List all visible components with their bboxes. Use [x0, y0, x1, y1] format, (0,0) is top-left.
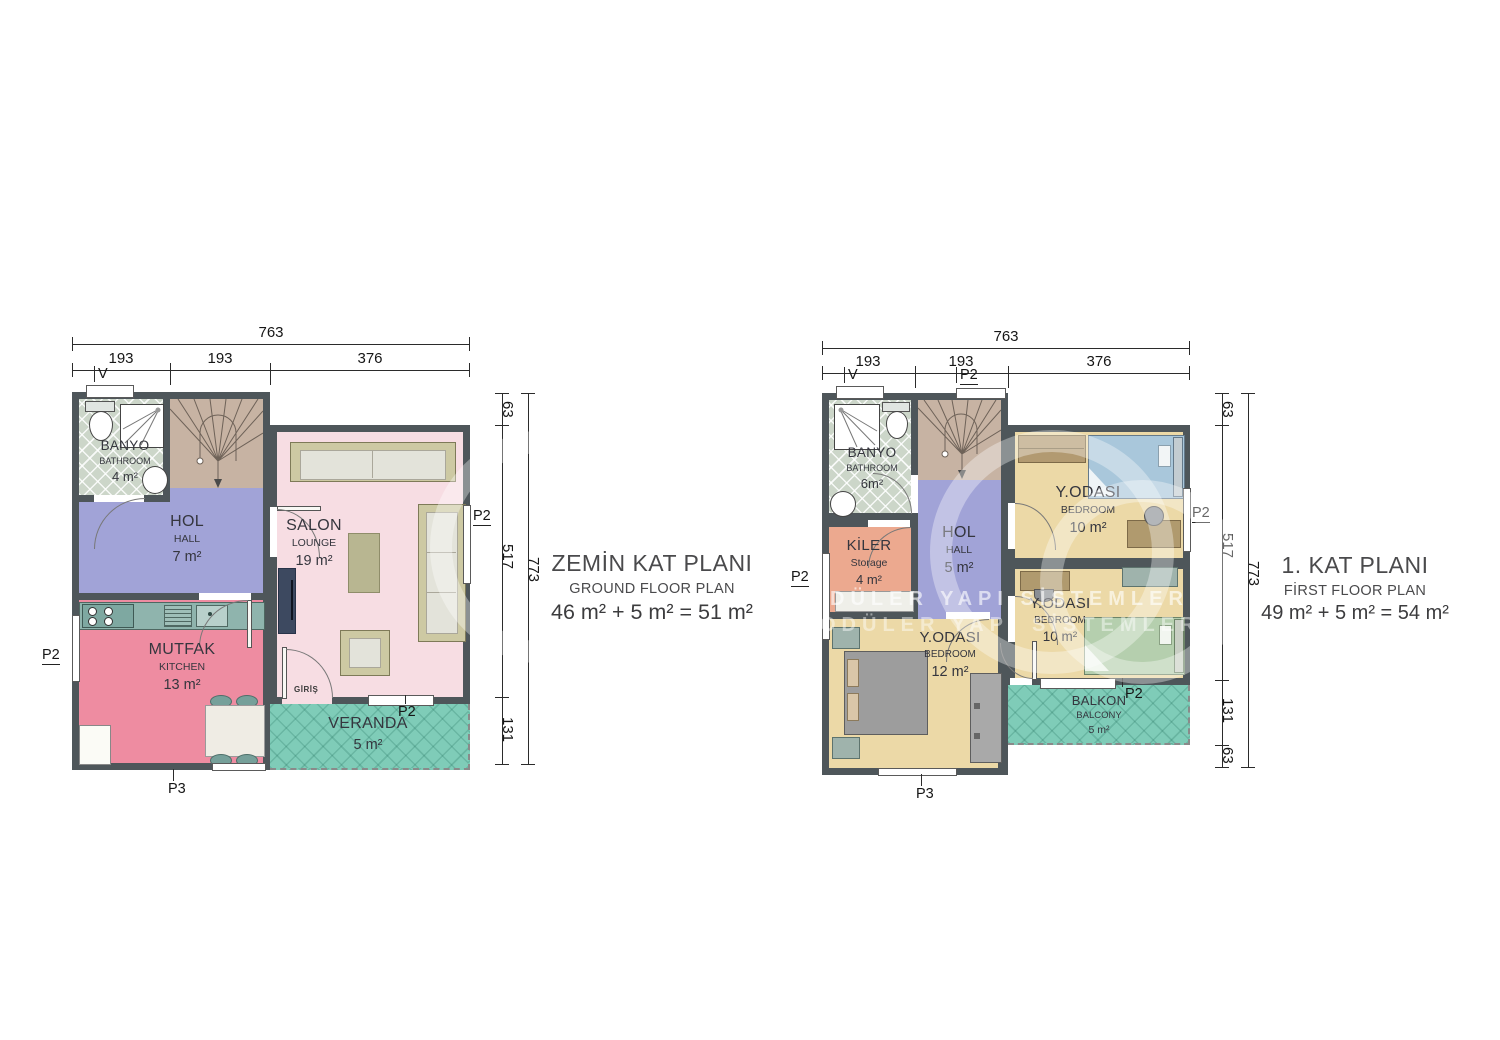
dim-tick — [173, 769, 174, 781]
dim-label: 63 — [1219, 401, 1236, 418]
room-name: MUTFAK — [149, 640, 216, 660]
door-opening — [868, 520, 910, 527]
door-opening-entrance — [282, 697, 332, 704]
vent-tag: V — [848, 367, 858, 384]
dim-label: 376 — [357, 350, 382, 367]
dim-label: 131 — [499, 717, 516, 742]
dim-tick — [170, 363, 171, 385]
dim-label: 131 — [1219, 698, 1236, 723]
watermark-logo-ring — [1040, 480, 1244, 684]
dim-tick — [915, 366, 916, 388]
room-area: 5 m² — [1072, 724, 1127, 737]
ground-floor-title-block: ZEMİN KAT PLANI GROUND FLOOR PLAN 46 m² … — [525, 550, 779, 625]
door-opening — [270, 507, 277, 557]
dim-tick — [822, 366, 823, 380]
dim-tick — [1008, 366, 1009, 388]
dim-tick — [1189, 341, 1190, 355]
dim-label: 193 — [207, 350, 232, 367]
room-name: VERANDA — [328, 714, 407, 734]
room-label-kiler: KİLER Storage 4 m² — [847, 537, 892, 588]
room-label-banyo: BANYO BATHROOM 6m² — [846, 445, 897, 492]
dim-tick — [495, 697, 509, 698]
wardrobe-handle — [974, 733, 980, 739]
plan-title: 1. KAT PLANI — [1248, 552, 1462, 579]
dim-label: 193 — [108, 350, 133, 367]
dim-line — [822, 348, 1190, 349]
room-name-en: BATHROOM — [846, 463, 897, 474]
dim-label-total-width: 763 — [993, 328, 1018, 345]
dim-tick — [72, 337, 73, 351]
wardrobe — [970, 673, 1002, 763]
stove-burner — [104, 607, 113, 616]
dim-tick — [1215, 393, 1229, 394]
vent-window — [86, 385, 134, 398]
room-label-veranda: VERANDA 5 m² — [328, 714, 407, 754]
room-name-en: BEDROOM — [919, 649, 980, 662]
dim-tick — [495, 764, 509, 765]
door-tag-p3: P3 — [916, 786, 934, 803]
dining-table — [205, 705, 265, 757]
dim-tick — [1241, 767, 1255, 768]
room-area: 4 m² — [847, 572, 892, 588]
vent-tag: V — [98, 366, 108, 383]
dim-tick — [1215, 680, 1229, 681]
plan-subtitle: FİRST FLOOR PLAN — [1248, 583, 1462, 599]
dim-tick — [72, 363, 73, 377]
dim-tick — [469, 337, 470, 351]
dim-tick — [521, 393, 535, 394]
dim-line — [72, 370, 470, 371]
dim-tick — [495, 393, 509, 394]
dim-label: 63 — [1219, 747, 1236, 764]
room-area: 6m² — [846, 476, 897, 492]
room-area: 19 m² — [286, 552, 342, 570]
watermark-text: DÜLER YAPI SİSTEMLERİ — [830, 588, 1201, 611]
window — [956, 388, 1006, 399]
dim-tick — [94, 366, 95, 382]
room-name: BANYO — [99, 438, 150, 455]
room-name-en: HALL — [170, 533, 204, 546]
dim-tick — [1189, 366, 1190, 380]
door-opening — [1010, 678, 1032, 685]
floor-plan-sheet: 763 193 193 376 63 517 131 773 V P2 P2 P… — [0, 0, 1500, 1040]
stove-burner — [104, 617, 113, 626]
window — [878, 768, 957, 776]
dim-tick — [956, 367, 957, 383]
dim-label: 376 — [1086, 353, 1111, 370]
window-tag-p2: P2 — [791, 569, 809, 587]
room-label-salon: SALON LOUNGE 19 m² — [286, 516, 342, 570]
nightstand — [832, 737, 860, 759]
dim-tick — [405, 695, 406, 704]
tv-unit — [278, 568, 296, 634]
door-tag-p3: P3 — [168, 781, 186, 798]
room-area: 13 m² — [149, 676, 216, 694]
pillow — [1158, 445, 1171, 467]
stove-burner — [88, 617, 97, 626]
sink — [830, 491, 856, 517]
door-opening — [911, 475, 918, 513]
shower — [834, 404, 880, 450]
room-name-en: KITCHEN — [149, 661, 216, 674]
room-label-banyo: BANYO BATHROOM 4 m² — [99, 438, 150, 485]
room-area: 7 m² — [170, 548, 204, 566]
room-name-en: BALCONY — [1072, 710, 1127, 722]
plan-area-equation: 49 m² + 5 m² = 54 m² — [1248, 602, 1462, 625]
room-name-en: LOUNGE — [286, 537, 342, 550]
dim-tick — [921, 774, 922, 786]
room-name-en: Storage — [847, 557, 892, 570]
dim-tick — [1241, 393, 1255, 394]
dim-tick — [521, 764, 535, 765]
room-label-balkon: BALKON BALCONY 5 m² — [1072, 693, 1127, 737]
window — [72, 615, 80, 682]
stove-burner — [88, 607, 97, 616]
coffee-table — [348, 533, 380, 593]
ground-floor-plan: 763 193 193 376 63 517 131 773 V P2 P2 P… — [72, 392, 470, 770]
dim-tick — [270, 363, 271, 385]
watermark-text: ODÜLER YAPI SİSTEMLERİ — [820, 614, 1212, 637]
watermark-logo-ring — [430, 430, 664, 664]
window-tag-p2: P2 — [42, 647, 60, 665]
dim-label: 193 — [855, 353, 880, 370]
dim-line — [72, 344, 470, 345]
dim-label-total-width: 763 — [258, 324, 283, 341]
room-area: 5 m² — [328, 736, 407, 754]
dim-tick — [469, 363, 470, 377]
room-name: SALON — [286, 516, 342, 536]
room-label-hol: HOL HALL 7 m² — [170, 512, 204, 566]
room-label-mutfak: MUTFAK KITCHEN 13 m² — [149, 640, 216, 694]
entrance-label: GİRİŞ — [294, 685, 318, 694]
vent-window — [836, 386, 884, 399]
plan-subtitle: GROUND FLOOR PLAN — [525, 581, 779, 597]
dim-tick — [1215, 425, 1229, 426]
window-tag-p2: P2 — [960, 367, 978, 385]
window — [1040, 678, 1116, 689]
room-name: HOL — [170, 512, 204, 532]
window-tag-p2: P2 — [398, 704, 416, 721]
room-name: KİLER — [847, 537, 892, 556]
pillow — [847, 693, 859, 721]
dim-tick — [822, 341, 823, 355]
first-floor-title-block: 1. KAT PLANI FİRST FLOOR PLAN 49 m² + 5 … — [1248, 552, 1462, 625]
plan-title: ZEMİN KAT PLANI — [525, 550, 779, 577]
room-area: 12 m² — [919, 663, 980, 681]
stairs-icon — [170, 399, 263, 488]
pillow — [847, 659, 859, 687]
window — [212, 763, 266, 771]
plan-area-equation: 46 m² + 5 m² = 51 m² — [525, 600, 779, 625]
door-opening — [199, 593, 251, 600]
room-area: 4 m² — [99, 469, 150, 485]
room-name: BANYO — [846, 445, 897, 462]
armchair-seat — [349, 638, 381, 668]
dim-line — [822, 373, 1190, 374]
sofa-seat — [300, 450, 446, 480]
room-name-en: BATHROOM — [99, 456, 150, 467]
dim-tick — [1215, 745, 1229, 746]
sofa-divider — [372, 450, 373, 478]
dim-tick — [495, 425, 509, 426]
dim-tick — [844, 367, 845, 383]
dim-label: 63 — [499, 401, 516, 418]
room-name: BALKON — [1072, 693, 1127, 709]
window-tag-p2: P2 — [1125, 686, 1143, 703]
drainboard — [164, 605, 192, 627]
cabinet — [79, 725, 111, 765]
tv-screen — [291, 580, 293, 620]
dim-tick — [1215, 767, 1229, 768]
wardrobe-handle — [974, 703, 980, 709]
